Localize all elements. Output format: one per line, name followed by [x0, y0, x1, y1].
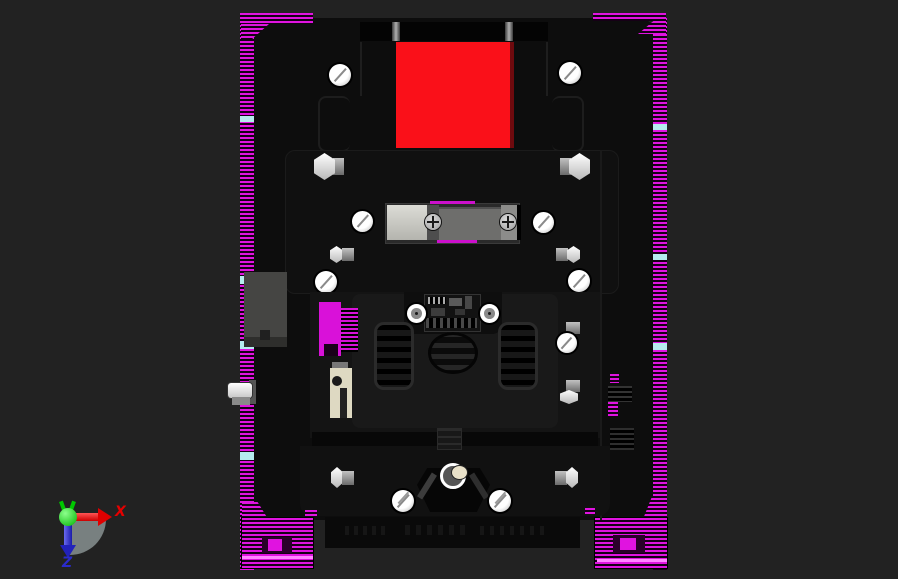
top-deck-contour: [360, 42, 362, 96]
bolt-shank: [342, 471, 354, 485]
connector-accent-top: [430, 201, 475, 204]
pcb-component: [431, 308, 445, 316]
slotted-screw[interactable]: [329, 64, 351, 86]
right-track-top-segment[interactable]: [593, 13, 666, 21]
left-track-bottom-hub-core: [268, 539, 282, 551]
bolt-shank: [556, 248, 568, 261]
top-recess-bar: [360, 22, 548, 41]
bottom-connector-stub: [437, 428, 462, 450]
slotted-screw[interactable]: [392, 490, 414, 512]
right-track-tread[interactable]: [653, 18, 667, 570]
side-knob[interactable]: [228, 383, 252, 398]
label-emboss-mark: [345, 526, 385, 535]
connector-accent-bottom: [437, 240, 477, 243]
top-deck-step-outline: [552, 96, 584, 152]
bolt-shank: [555, 471, 567, 485]
phillips-screw[interactable]: [425, 214, 441, 230]
slotted-screw[interactable]: [568, 270, 590, 292]
right-track-gap: [653, 343, 667, 350]
pcb-component: [465, 296, 472, 309]
right-track-bottom-hub-core: [620, 538, 636, 550]
pod-screw-cap[interactable]: [452, 466, 467, 479]
right-rail-magenta-mark: [610, 374, 619, 383]
x-axis-arrow[interactable]: [74, 513, 100, 521]
label-emboss-mark: [405, 525, 465, 535]
edge-magenta-dash: [305, 510, 317, 516]
ring-screw[interactable]: [480, 304, 499, 323]
cad-viewport[interactable]: X Z: [0, 0, 898, 579]
red-lid[interactable]: [396, 42, 514, 148]
pcb-pin-header-bottom: [426, 318, 477, 328]
label-emboss-mark: [480, 526, 550, 535]
slotted-screw[interactable]: [315, 271, 337, 293]
edge-magenta-dash: [585, 508, 595, 514]
slotted-screw[interactable]: [352, 211, 373, 232]
left-track-gap: [240, 116, 254, 122]
connector-block-gray[interactable]: [439, 207, 501, 240]
bracket-slot: [340, 388, 347, 418]
slotted-screw[interactable]: [489, 490, 511, 512]
side-knob-base: [232, 397, 250, 405]
fan-cap[interactable]: [428, 332, 478, 374]
left-motor-fins: [341, 308, 358, 352]
phillips-screw[interactable]: [500, 214, 516, 230]
left-track-top-segment[interactable]: [241, 13, 313, 24]
bolt-shank: [342, 248, 354, 261]
right-rail-ladder: [610, 428, 634, 450]
left-motor-notch: [324, 344, 338, 356]
top-hinge-pin: [505, 22, 513, 41]
z-axis-label: Z: [62, 555, 72, 571]
pcb-component: [455, 309, 465, 315]
pcb-pin-header-top: [428, 297, 446, 304]
right-rail-magenta-mark: [608, 402, 618, 417]
right-rail-ladder: [608, 386, 632, 402]
left-side-panel-port: [260, 330, 270, 340]
ring-screw[interactable]: [407, 304, 426, 323]
triad-shadow: [70, 519, 106, 555]
bolt-shank: [566, 380, 580, 392]
right-track-gap: [653, 124, 667, 130]
pcb-component: [449, 298, 462, 306]
origin-sphere: [59, 508, 77, 526]
x-axis-label: X: [115, 504, 126, 520]
right-track-gap: [653, 254, 667, 260]
top-deck-step-outline: [318, 96, 350, 152]
left-track-highlight: [242, 556, 313, 559]
right-track-highlight: [597, 559, 667, 562]
left-track-gap: [240, 452, 254, 460]
orientation-triad: X Z: [50, 495, 130, 570]
connector-block-light[interactable]: [387, 205, 427, 240]
bracket-bolt: [332, 376, 342, 386]
vent-grille-right: [498, 322, 538, 390]
top-deck-contour: [546, 42, 548, 96]
connector-end-cap: [517, 205, 521, 240]
slotted-screw[interactable]: [559, 62, 581, 84]
top-hinge-pin: [392, 22, 400, 41]
slotted-screw[interactable]: [533, 212, 554, 233]
slotted-screw[interactable]: [557, 333, 577, 353]
vent-grille-left: [374, 322, 414, 390]
